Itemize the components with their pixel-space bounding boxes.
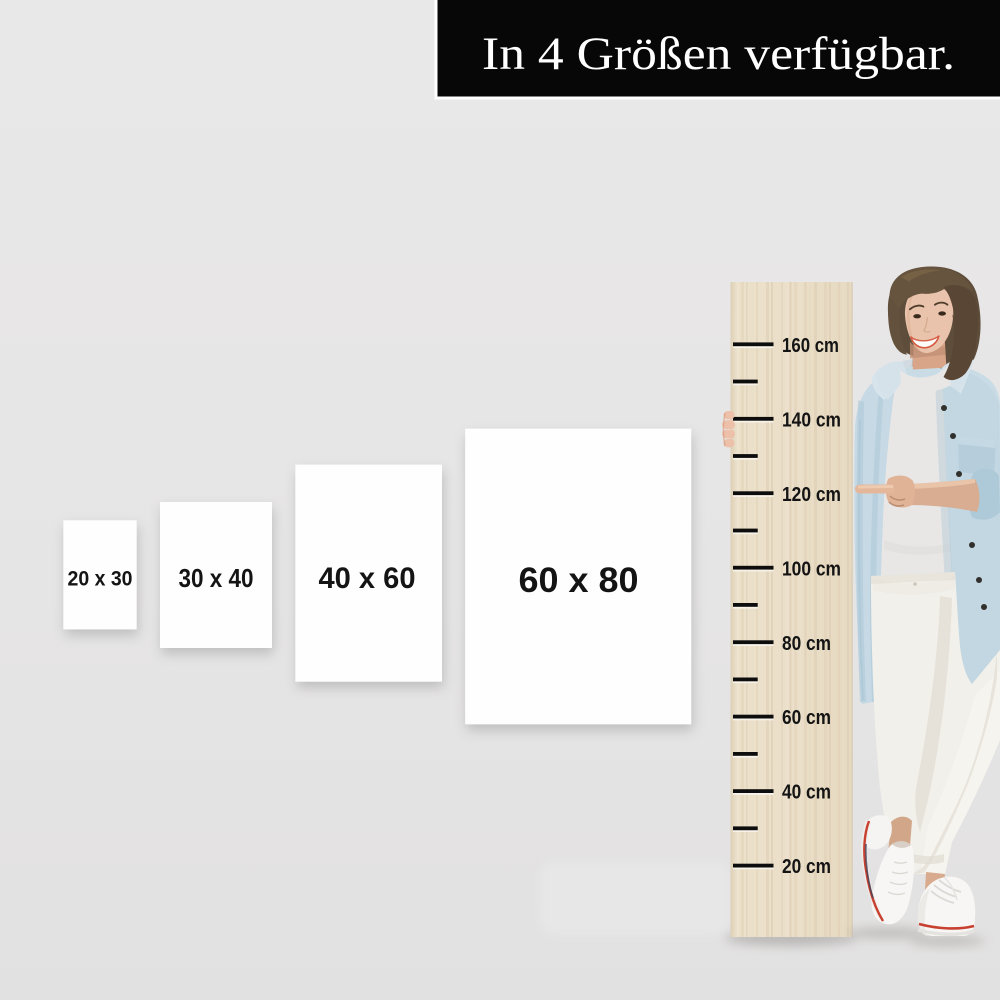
svg-text:60 cm: 60 cm xyxy=(782,707,831,729)
svg-text:160 cm: 160 cm xyxy=(782,335,839,357)
svg-text:40 cm: 40 cm xyxy=(782,782,831,804)
svg-text:20 cm: 20 cm xyxy=(782,856,831,878)
svg-text:120 cm: 120 cm xyxy=(782,484,841,506)
svg-text:140 cm: 140 cm xyxy=(782,409,841,431)
svg-text:30 x 40: 30 x 40 xyxy=(179,563,254,593)
svg-text:80 cm: 80 cm xyxy=(782,633,831,655)
svg-text:In 4 Größen verfügbar.: In 4 Größen verfügbar. xyxy=(482,28,955,80)
svg-text:60 x 80: 60 x 80 xyxy=(519,560,639,600)
svg-text:100 cm: 100 cm xyxy=(782,558,841,580)
svg-text:40 x 60: 40 x 60 xyxy=(319,562,416,595)
svg-text:20 x 30: 20 x 30 xyxy=(68,567,133,591)
